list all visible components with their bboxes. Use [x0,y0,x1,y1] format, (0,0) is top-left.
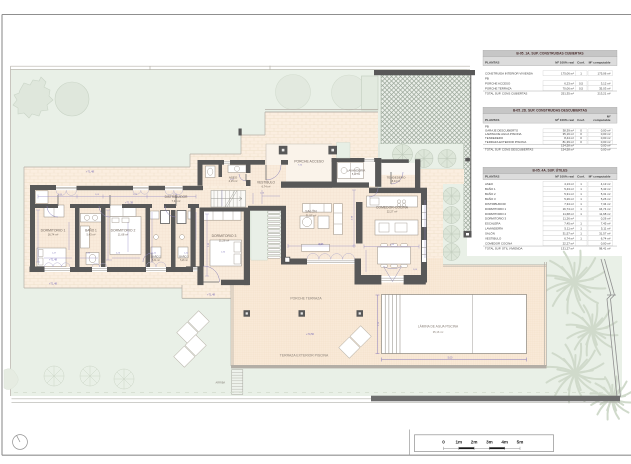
svg-text:5,26 m²: 5,26 m² [564,197,574,201]
svg-text:6,74 m²: 6,74 m² [564,237,574,241]
svg-text:M² computable: M² computable [589,61,611,65]
svg-text:35,16 m²: 35,16 m² [433,330,444,334]
svg-text:TOTAL SUP. CONS DESCUBIERTAS: TOTAL SUP. CONS DESCUBIERTAS [485,147,533,151]
svg-text:TERRAZA EXTERIOR PISCINA: TERRAZA EXTERIOR PISCINA [485,140,526,144]
svg-text:BAÑO 3: BAÑO 3 [485,196,496,201]
svg-text:B-05_1A. SUP. CONSTRUIDAS CUBI: B-05_1A. SUP. CONSTRUIDAS CUBIERTAS [516,52,584,56]
svg-text:16,74 m²: 16,74 m² [599,207,610,211]
svg-text:5,11 m²: 5,11 m² [564,227,574,231]
svg-text:11,68 m²: 11,68 m² [563,212,574,216]
svg-text:70,06 m²: 70,06 m² [563,86,574,90]
svg-text:+74,50: +74,50 [306,332,315,336]
svg-text:0,26 m²: 0,26 m² [601,217,611,221]
svg-text:PLANTAS: PLANTAS [485,118,499,122]
svg-text:31,57 m²: 31,57 m² [306,214,317,218]
svg-text:11,68 m²: 11,68 m² [118,233,129,237]
svg-text:TERRAZA EXTERIOR PISCINA: TERRAZA EXTERIOR PISCINA [280,354,329,358]
svg-text:5,43 m²: 5,43 m² [601,187,611,191]
svg-text:+71,48: +71,48 [86,170,95,174]
svg-text:22,27 m²: 22,27 m² [387,210,398,214]
svg-text:M² computable: M² computable [589,175,611,179]
svg-text:B-05_4A. SUP. ÚTILES: B-05_4A. SUP. ÚTILES [533,168,569,173]
svg-text:TENDEDERO: TENDEDERO [387,176,407,180]
svg-text:31,57 m²: 31,57 m² [599,232,610,236]
svg-text:5,26 m²: 5,26 m² [180,259,188,262]
svg-text:BAÑO 1: BAÑO 1 [485,186,496,191]
svg-text:PORCHE TERRAZA: PORCHE TERRAZA [485,86,512,90]
svg-text:8,44 m²: 8,44 m² [392,180,401,183]
svg-text:LÁMINA DE AGUA PISCINA: LÁMINA DE AGUA PISCINA [418,325,459,329]
svg-text:7,45 m²: 7,45 m² [601,222,611,226]
svg-text:VESTIBULO: VESTIBULO [485,237,502,241]
svg-text:Coef.: Coef. [577,175,585,179]
svg-text:11,26 m²: 11,26 m² [219,239,230,243]
svg-text:PLANTAS: PLANTAS [485,175,499,179]
svg-text:+71,48: +71,48 [49,282,58,286]
svg-text:5,00: 5,00 [448,356,453,359]
svg-text:4,13 m²: 4,13 m² [564,182,574,186]
svg-text:0,5: 0,5 [579,81,583,85]
svg-text:DORMITORIO 3: DORMITORIO 3 [212,234,237,238]
svg-text:PORCHE TERRAZA: PORCHE TERRAZA [290,297,322,301]
svg-text:5,26 m²: 5,26 m² [601,197,611,201]
svg-text:DISTRIBUIDOR: DISTRIBUIDOR [485,202,506,206]
svg-text:5,43 m²: 5,43 m² [564,187,574,191]
svg-text:DORMITORIO 3: DORMITORIO 3 [485,217,507,221]
svg-text:31,57 m²: 31,57 m² [563,232,574,236]
svg-text:213,21 m²: 213,21 m² [597,91,610,95]
svg-text:6,74 m²: 6,74 m² [262,185,271,189]
svg-text:PLANTAS: PLANTAS [485,61,499,65]
svg-text:DORMITORIO 2: DORMITORIO 2 [485,212,507,216]
svg-text:0: 0 [442,440,445,445]
svg-text:0,00 m²: 0,00 m² [601,241,611,245]
svg-text:PB: PB [485,76,489,80]
svg-text:1m: 1m [455,440,462,445]
svg-text:SALÓN: SALÓN [485,231,495,236]
svg-text:4m: 4m [501,440,508,445]
svg-text:BAÑO 1: BAÑO 1 [85,228,97,233]
svg-text:11,26 m²: 11,26 m² [563,217,574,221]
svg-text:M² 100% real: M² 100% real [555,175,574,179]
svg-text:175,06 m²: 175,06 m² [561,71,574,75]
svg-text:+71,48: +71,48 [207,293,216,297]
svg-text:computable: computable [593,118,611,122]
svg-text:5,31 m²: 5,31 m² [564,192,574,196]
svg-text:BAÑO 2: BAÑO 2 [485,191,496,196]
svg-text:DORMITORIO 1: DORMITORIO 1 [41,229,66,233]
svg-text:ASEO: ASEO [485,182,494,186]
svg-text:M² 100% real: M² 100% real [555,61,574,65]
svg-text:22,27 m²: 22,27 m² [563,241,574,245]
svg-text:154,58 m²: 154,58 m² [561,147,574,151]
svg-text:5,31 m²: 5,31 m² [152,259,160,262]
svg-text:6,23 m²: 6,23 m² [564,81,574,85]
svg-text:VESTIBULO: VESTIBULO [257,181,275,185]
svg-text:7,34 m²: 7,34 m² [564,202,574,206]
svg-text:TOTAL SUP. CONS CUBIERTAS: TOTAL SUP. CONS CUBIERTAS [485,91,527,95]
svg-text:5,11 m²: 5,11 m² [601,227,611,231]
svg-text:COMEDOR-COCINA: COMEDOR-COCINA [376,206,409,210]
svg-text:ESCALERA: ESCALERA [485,222,500,226]
svg-text:131,27 m²: 131,27 m² [561,246,574,250]
svg-text:2m: 2m [471,440,478,445]
svg-text:11,68 m²: 11,68 m² [599,212,610,216]
svg-text:ARRIBA: ARRIBA [216,381,226,385]
svg-text:16,74 m²: 16,74 m² [48,233,59,237]
svg-text:35,03 m²: 35,03 m² [599,86,610,90]
svg-text:+71,38: +71,38 [125,200,134,204]
svg-text:16,74 m²: 16,74 m² [563,207,574,211]
svg-text:5m: 5m [517,440,524,445]
svg-text:PORCHE ACCESO: PORCHE ACCESO [294,160,324,164]
svg-text:LAVANDERÍA: LAVANDERÍA [485,227,503,231]
svg-text:Coef.: Coef. [577,118,585,122]
svg-text:7,34 m²: 7,34 m² [172,199,181,203]
svg-text:PORCHE ACCESO: PORCHE ACCESO [485,81,511,85]
svg-text:7,34 m²: 7,34 m² [601,202,611,206]
svg-text:CONSTRUIDA INTERIOR VIVIENDA: CONSTRUIDA INTERIOR VIVIENDA [485,71,533,75]
svg-text:0,5: 0,5 [579,86,583,90]
svg-text:M² 100% real: M² 100% real [555,118,574,122]
svg-text:5,11 m²: 5,11 m² [352,173,360,176]
svg-text:175,06 m²: 175,06 m² [597,71,610,75]
svg-text:4,13 m²: 4,13 m² [601,182,611,186]
svg-text:TOTAL SUP. ÚTIL VIVIENDA: TOTAL SUP. ÚTIL VIVIENDA [485,246,522,250]
svg-text:251,35 m²: 251,35 m² [561,91,574,95]
svg-text:3,12 m²: 3,12 m² [601,81,611,85]
svg-text:6,74 m²: 6,74 m² [601,237,611,241]
svg-text:5,31 m²: 5,31 m² [601,192,611,196]
svg-text:3m: 3m [486,440,493,445]
svg-text:DORMITORIO 2: DORMITORIO 2 [111,229,136,233]
svg-text:B-05_2D. SUP. CONSTRUIDAS DESC: B-05_2D. SUP. CONSTRUIDAS DESCUBIERTAS [513,109,588,113]
svg-text:COMEDOR COCINA: COMEDOR COCINA [485,241,512,245]
svg-text:Coef.: Coef. [577,61,585,65]
svg-text:SALÓN: SALÓN [305,209,317,214]
svg-text:7,45 m²: 7,45 m² [564,222,574,226]
svg-text:+71,48: +71,48 [49,258,58,262]
svg-text:98,41 m²: 98,41 m² [599,246,610,250]
svg-text:0,00 m²: 0,00 m² [601,147,611,151]
svg-text:DORMITORIO 1: DORMITORIO 1 [485,207,507,211]
svg-text:5,43 m²: 5,43 m² [86,233,95,237]
svg-text:LAVANDERÍA: LAVANDERÍA [347,169,366,173]
